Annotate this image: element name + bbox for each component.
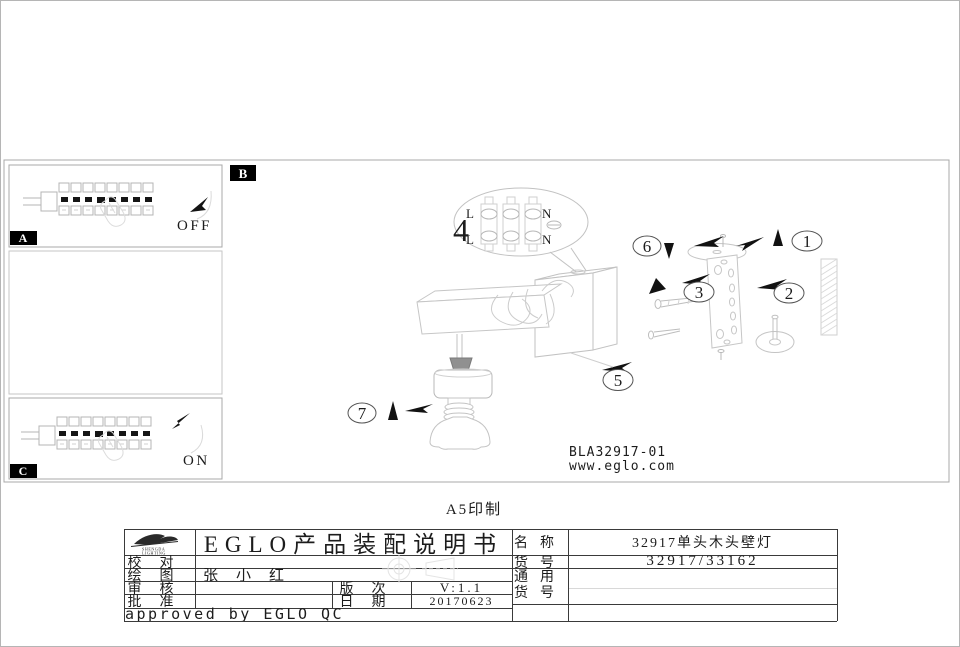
leader-line-5 xyxy=(571,353,613,367)
website-url: www.eglo.com xyxy=(569,459,675,474)
wall-fixing-disc xyxy=(756,315,794,352)
date-label: 日期 xyxy=(332,594,411,608)
date-value: 20170623 xyxy=(411,594,512,608)
panel-empty-frame xyxy=(9,251,222,394)
universal-item-no-label: 通用 货号 xyxy=(512,568,568,604)
terminal-l-bottom: L xyxy=(466,232,474,247)
item-no-value: 32917/33162 xyxy=(568,555,837,568)
arrow-up-1-icon xyxy=(773,229,783,246)
model-code: BLA32917-01 xyxy=(569,445,666,460)
version-value: V:1.1 xyxy=(411,581,512,594)
callout-5-number: 5 xyxy=(614,371,623,390)
terminal-n-top: N xyxy=(542,206,552,221)
off-arrow-icon xyxy=(190,197,208,212)
universal-item-no-value xyxy=(568,568,837,604)
company-logo: SHENGDA LIGHTING xyxy=(124,529,195,555)
switch-diagram-off xyxy=(23,183,153,226)
panel-c-letter: C xyxy=(19,464,28,478)
version-label: 版次 xyxy=(332,581,411,594)
name-label: 名称 xyxy=(512,529,568,555)
off-state-label: OFF xyxy=(177,218,212,234)
arrow-up-7-icon xyxy=(388,401,398,420)
light-bulb xyxy=(430,398,490,449)
callout-6-number: 6 xyxy=(643,237,652,256)
panel-b-label: B xyxy=(230,165,256,181)
callout-1-number: 1 xyxy=(803,232,812,251)
panel-c: ON C xyxy=(9,398,222,479)
lamp-body xyxy=(417,267,617,357)
document-title: EGLO产品装配说明书 xyxy=(195,528,512,555)
panel-b-letter: B xyxy=(239,166,248,181)
table-line xyxy=(512,604,837,605)
wiring-detail-balloon xyxy=(454,188,591,280)
product-name-value: 32917单头木头壁灯 xyxy=(568,529,837,555)
on-state-label: ON xyxy=(183,453,210,469)
approve-label: 批准 xyxy=(124,594,195,608)
switch-diagram-on xyxy=(21,417,151,460)
approved-note: approved by EGLO QC xyxy=(125,607,385,621)
callout-3-number: 3 xyxy=(695,283,704,302)
wall-section xyxy=(821,259,837,335)
universal-label-line2: 货号 xyxy=(514,586,566,602)
table-line xyxy=(837,529,838,621)
drawn-by-value: 张小红 xyxy=(195,568,340,581)
print-format-note: A5印制 xyxy=(439,500,509,516)
on-arrow-icon xyxy=(172,413,190,429)
review-label: 审核 xyxy=(124,581,195,594)
assembly-instruction-sheet: B OFF A ON C xyxy=(0,0,960,647)
callout-7-number: 7 xyxy=(358,404,367,423)
proofread-label: 校对 xyxy=(124,555,195,568)
terminal-n-bottom: N xyxy=(542,232,552,247)
panel-a-letter: A xyxy=(19,231,28,245)
callout-2-number: 2 xyxy=(785,284,794,303)
arrow-tri-3-icon xyxy=(649,278,666,294)
arrow-left-7-icon xyxy=(405,404,433,413)
rotate-arrow-arc xyxy=(191,425,203,453)
table-line xyxy=(124,621,837,622)
terminal-l-top: L xyxy=(466,206,474,221)
drawing-label: 绘图 xyxy=(124,568,195,581)
lamp-socket xyxy=(434,334,492,398)
mounting-screws xyxy=(649,297,705,339)
universal-label-line1: 通用 xyxy=(514,570,566,586)
panel-a: OFF A xyxy=(9,165,222,247)
item-no-label: 货号 xyxy=(512,555,568,568)
arrow-down-6-icon xyxy=(664,243,674,259)
assembly-diagram: 4 L L N N xyxy=(348,188,837,474)
